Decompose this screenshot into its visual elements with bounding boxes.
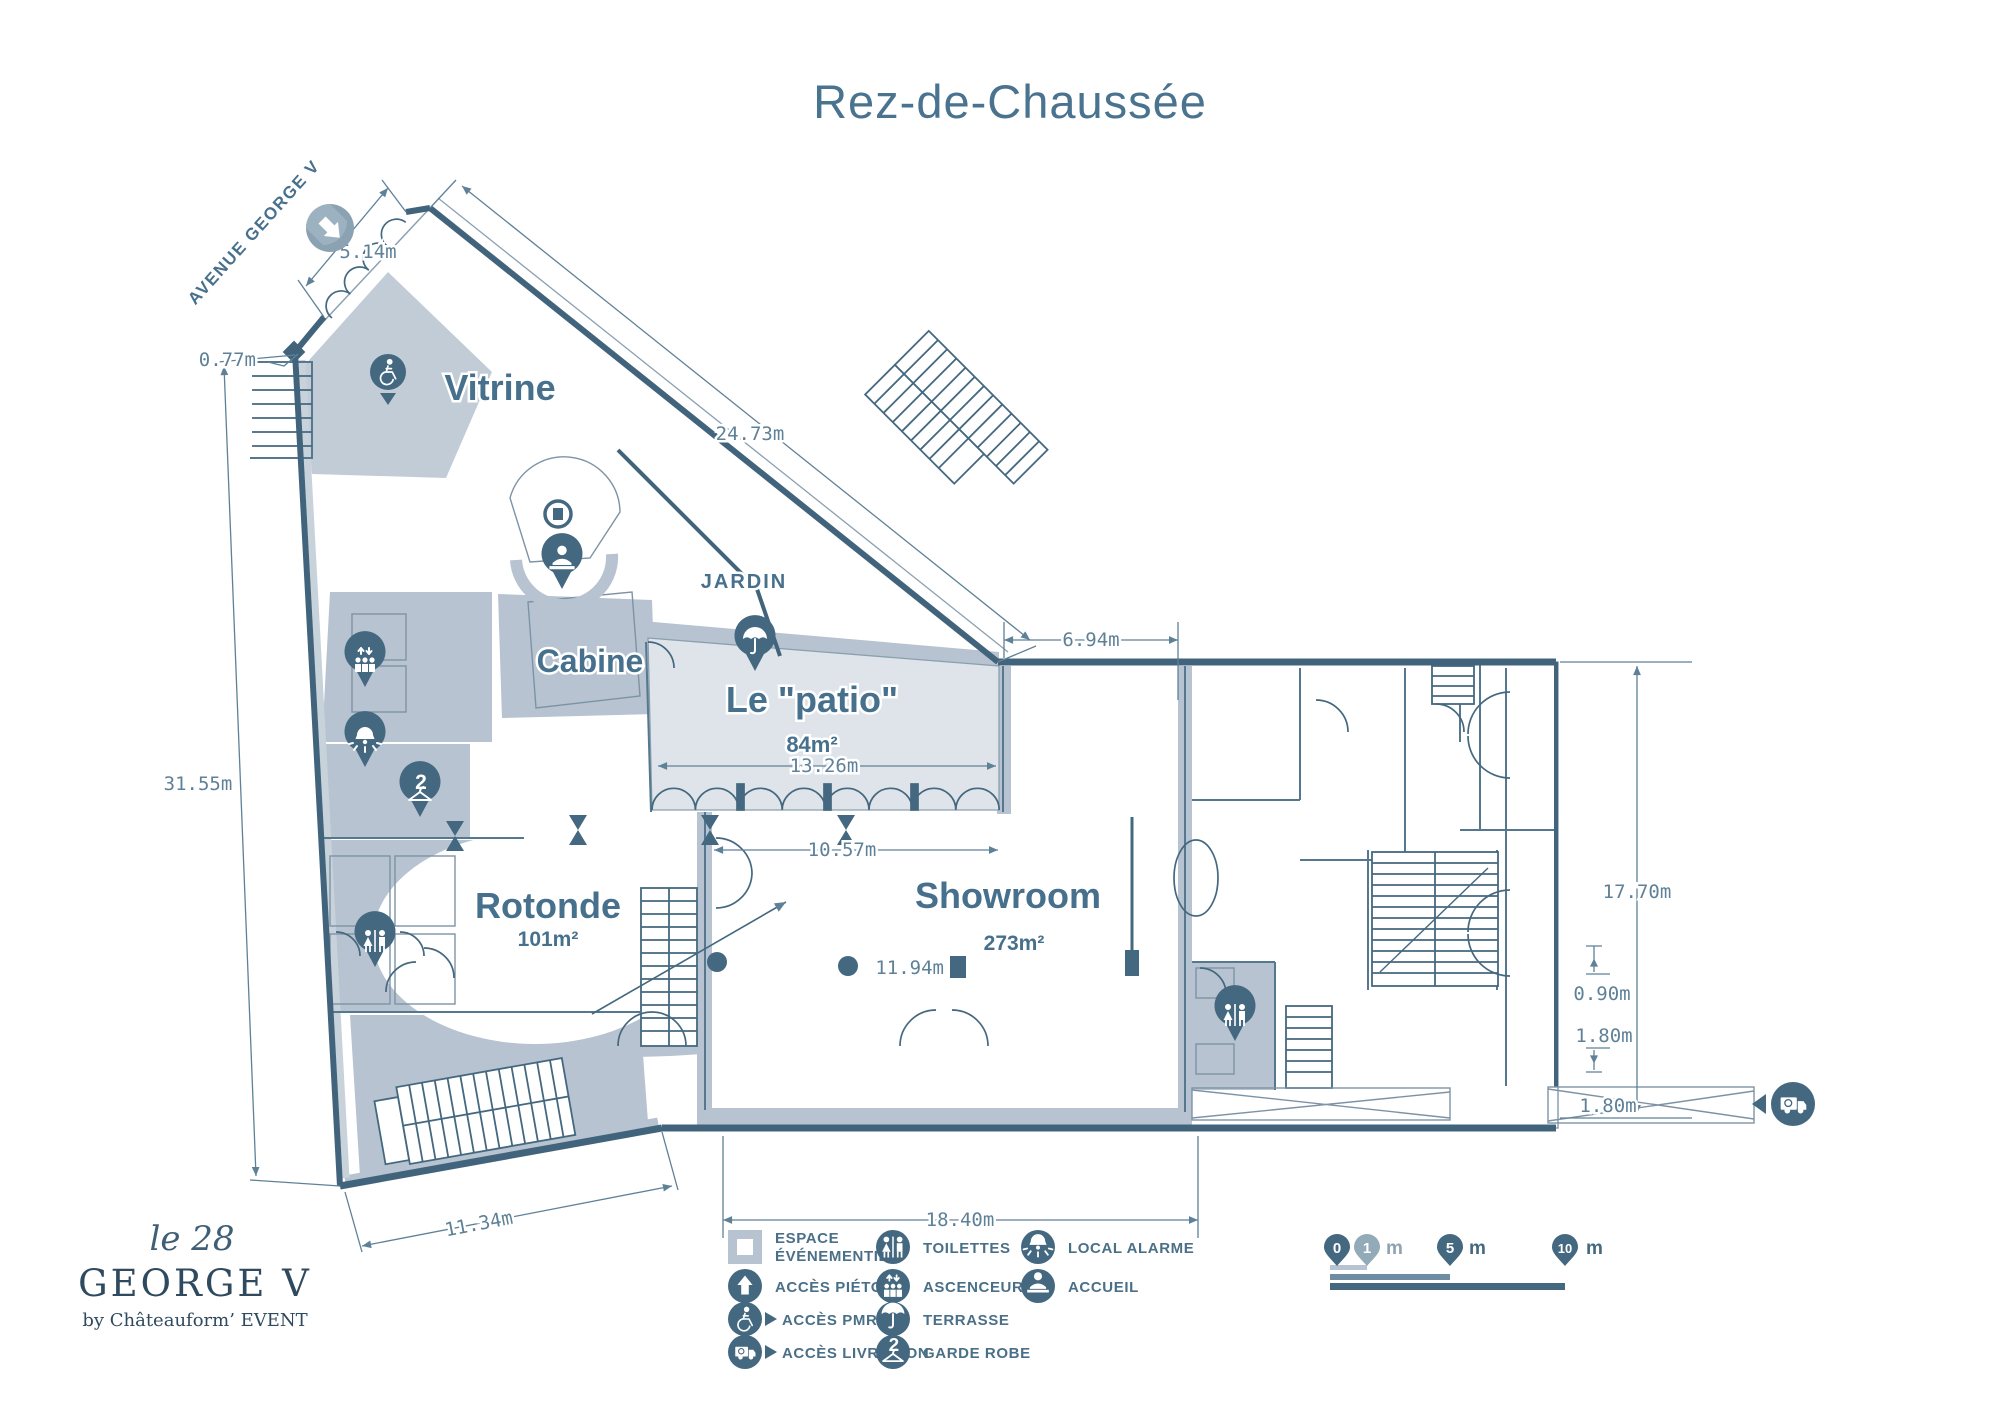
dim-top-right-span: 6.94m [1062,629,1119,651]
dim-showroom-depth: 11.94m [875,957,944,979]
legend-item-elevator: ASCENCEUR [876,1269,1023,1303]
scale-pin-label: 10 [1558,1241,1572,1256]
scale-pin-1: 1 [1354,1234,1380,1266]
scale-unit: m [1586,1238,1603,1259]
legend-item-cloakroom: GARDE ROBE [876,1335,1031,1369]
dim-niche-depth: 0.90m [1573,983,1630,1005]
delivery-access-icon [728,1335,762,1369]
dim-showroom-width: 18.40m [926,1209,995,1231]
page-title: Rez-de-Chaussée [813,75,1207,128]
dim-bottom-left-wall: 11.34m [443,1207,515,1242]
dim-showroom-upper-width: 10.57m [808,839,877,861]
logo-byline: by Châteauform’ EVENT [82,1310,307,1331]
legend-label: ACCÈS PMR [782,1312,877,1329]
scale-pin-10: 10 [1552,1234,1578,1266]
label-avenue: AVENUE GEORGE V [184,156,324,308]
dim-wall-offset: 0.77m [199,349,256,371]
pedestrian-access-icon [728,1269,762,1303]
dim-ramp-width: 1.80m [1579,1095,1636,1117]
scale-bar-10m [1330,1283,1565,1290]
dim-niche-height: 1.80m [1575,1025,1632,1047]
cloakroom-icon [876,1335,910,1369]
label-vitrine: Vitrine [444,367,555,408]
floor-plan: 5.14m 0.77m 24.73m 31.55m 6.94m 13.26m 1… [164,156,1815,1252]
floor-plan-page: 2 [0,0,2000,1414]
dim-right-wing-depth: 17.70m [1603,881,1672,903]
legend-label: LOCAL ALARME [1068,1240,1194,1257]
legend-label: ACCUEIL [1068,1279,1139,1296]
elevator-icon [876,1269,910,1303]
legend-item-reception: ACCUEIL [1021,1269,1139,1303]
logo-script: le 28 [149,1219,234,1259]
legend-item-pmr-access: ACCÈS PMR [728,1302,877,1336]
label-patio: Le "patio" [726,679,898,720]
label-jardin: JARDIN [701,571,787,593]
terrace-icon [876,1302,910,1336]
scale-unit: m [1469,1238,1486,1259]
legend-item-pedestrian-access: ACCÈS PIÉTON [728,1269,894,1303]
scale-bar-5m [1330,1274,1450,1280]
label-rotonde-area: 101m² [518,928,579,951]
label-cabine: Cabine [537,643,644,679]
dim-patio-width: 13.26m [790,755,859,777]
label-showroom-area: 273m² [984,932,1045,955]
scale-pin-0: 0 [1324,1234,1350,1266]
reception-icon [1021,1269,1055,1303]
legend-label: TOILETTES [923,1240,1011,1257]
scale-bar: 0 1 m 5 m 10 m [1324,1234,1603,1290]
alarm-room-icon [1021,1230,1055,1264]
delivery-access-icon [1752,1082,1815,1126]
brand-logo: le 28 GEORGE V by Châteauform’ EVENT [78,1219,312,1331]
scale-pin-label: 5 [1446,1240,1454,1257]
scale-pin-5: 5 [1437,1234,1463,1266]
label-patio-area: 84m² [786,732,837,757]
scale-pin-label: 0 [1333,1240,1341,1257]
scale-pin-label: 1 [1363,1240,1371,1257]
legend-label: GARDE ROBE [923,1345,1031,1362]
label-showroom: Showroom [915,875,1101,916]
logo-name: GEORGE V [78,1262,312,1305]
pmr-access-icon [728,1302,762,1336]
label-rotonde: Rotonde [475,885,621,926]
toilets-icon [876,1230,910,1264]
dim-facade-diagonal: 24.73m [716,423,785,445]
legend-label: ASCENCEUR [923,1279,1023,1296]
legend-label: ESPACE [775,1230,839,1247]
legend-label: TERRASSE [923,1312,1009,1329]
legend-item-toilets: TOILETTES [876,1230,1011,1264]
legend-item-event-space: ESPACE ÉVÉNEMENTIEL [728,1230,899,1265]
dim-entrance-width: 5.14m [339,241,396,263]
legend: ESPACE ÉVÉNEMENTIEL ACCÈS PIÉTON ACCÈS P… [728,1230,1194,1369]
scale-bar-1m [1330,1265,1367,1270]
scale-unit: m [1386,1238,1403,1259]
legend-item-alarm-room: LOCAL ALARME [1021,1230,1194,1264]
dim-left-wall: 31.55m [164,773,233,795]
legend-item-terrace: TERRASSE [876,1302,1009,1336]
avenue-arrow-icon [306,204,354,252]
